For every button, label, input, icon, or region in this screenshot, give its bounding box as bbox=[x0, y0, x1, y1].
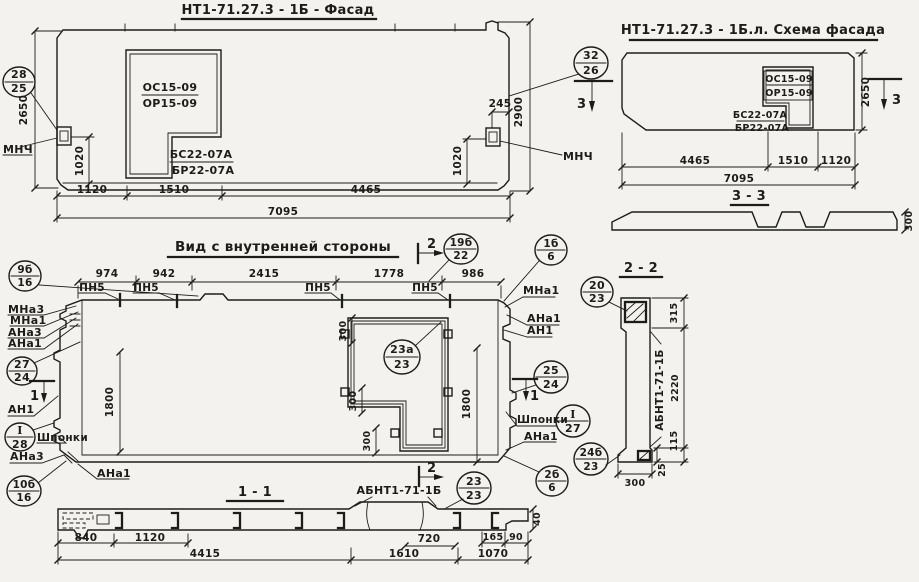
s22-dim-115: 115 bbox=[669, 431, 680, 452]
s11-dim-1120: 1120 bbox=[135, 532, 165, 544]
facade-br-mark: БР22-07А bbox=[172, 164, 235, 177]
inner-view-title: Вид с внутренней стороны bbox=[175, 239, 391, 255]
scheme-section3-markers: 3 3 bbox=[575, 79, 901, 112]
circle-9b-16-top: 9б bbox=[17, 264, 32, 276]
s11-dim-840: 840 bbox=[75, 532, 98, 544]
circle-28-25-bottom: 25 bbox=[11, 82, 27, 95]
inner-dim-974: 974 bbox=[96, 268, 119, 280]
circle-27-24-top: 27 bbox=[14, 358, 30, 371]
inner-dim-1778: 1778 bbox=[374, 268, 404, 280]
scheme-dim-1510: 1510 bbox=[778, 155, 808, 167]
circle-I-27-top: I bbox=[570, 408, 575, 421]
section2-marker-bottom: 2 bbox=[419, 461, 444, 486]
inner-mark-circle-23a-23: 23а 23 bbox=[384, 322, 441, 374]
scheme-marker3-left: 3 bbox=[577, 97, 586, 112]
scheme-dim-2650: 2650 bbox=[860, 77, 872, 107]
facade-panel-outline bbox=[57, 21, 509, 190]
s22-dim-25: 25 bbox=[657, 463, 668, 477]
inner-dim-986: 986 bbox=[462, 268, 485, 280]
inner-dim-300-c: 300 bbox=[362, 431, 373, 452]
facade-embed-plates bbox=[57, 127, 500, 146]
circle-I-28-top: I bbox=[17, 424, 22, 437]
s22-dim-2220: 2220 bbox=[670, 374, 681, 402]
circle-24b-23-bottom: 23 bbox=[583, 461, 598, 473]
label-ana1-bottom: АНа1 bbox=[97, 467, 131, 480]
section2-marker-top: 2 bbox=[418, 237, 444, 263]
section-1-1-mark-circle-23-23: 23 23 bbox=[446, 472, 491, 508]
scheme-dim-4465: 4465 bbox=[680, 155, 710, 167]
section-2-2-title: 2 - 2 bbox=[624, 261, 658, 276]
circle-1b-6-bottom: 6 bbox=[547, 251, 555, 263]
section-1-1-title: 1 - 1 bbox=[238, 485, 272, 500]
section-2-2-profile bbox=[618, 298, 652, 462]
inner-mark-circle-10b-16: 10б 16 bbox=[7, 461, 66, 506]
s11-dim-40: 40 bbox=[532, 512, 543, 526]
label-an1-left: АН1 bbox=[8, 403, 34, 416]
drawing-sheet: НТ1-71.27.3 - 1Б - Фасад 28 25 МНЧ ОС15-… bbox=[0, 0, 919, 582]
inner-panel-outline bbox=[54, 294, 516, 463]
facade-dim-1120: 1120 bbox=[77, 184, 107, 196]
panel-drawing-canvas: НТ1-71.27.3 - 1Б - Фасад 28 25 МНЧ ОС15-… bbox=[0, 0, 919, 582]
circle-2b-6-top: 2б bbox=[544, 469, 559, 481]
label-shponki-right: Шпонки bbox=[517, 414, 568, 426]
circle-23a-23-top: 23а bbox=[390, 343, 414, 356]
inner-mark-circle-25-24: 25 24 bbox=[512, 361, 568, 393]
scheme-dim-1120: 1120 bbox=[821, 155, 851, 167]
s11-dim-165: 165 bbox=[483, 532, 504, 543]
inner-dim-1800-right: 1800 bbox=[461, 389, 473, 419]
inner-dim-942: 942 bbox=[153, 268, 176, 280]
inner-mark-circle-2b-6: 2б 6 bbox=[504, 456, 568, 496]
inner-view-drawing: Вид с внутренней стороны 2 19б 22 974 94… bbox=[5, 234, 590, 506]
circle-10b-16-top: 10б bbox=[13, 479, 36, 491]
facade-dim-4465: 4465 bbox=[351, 184, 381, 196]
inner-dim-1800-left: 1800 bbox=[104, 387, 116, 417]
facade-or-mark: ОР15-09 bbox=[143, 97, 198, 110]
circle-23-23-top: 23 bbox=[466, 475, 482, 488]
marker2-bottom-label: 2 bbox=[427, 461, 436, 476]
facade-title: НТ1-71.27.3 - 1Б - Фасад bbox=[182, 3, 375, 18]
circle-24b-23-top: 24б bbox=[580, 447, 603, 459]
scheme-bs-mark: БС22-07А bbox=[733, 110, 788, 121]
section-3-3-title: 3 - 3 bbox=[732, 189, 766, 204]
s11-dim-720: 720 bbox=[418, 533, 441, 545]
label-ana1-mid-right-leader bbox=[506, 442, 556, 450]
scheme-dim-7095: 7095 bbox=[724, 173, 754, 185]
facade-dim-2900: 2900 bbox=[513, 97, 525, 127]
s22-dim-315: 315 bbox=[669, 303, 680, 324]
circle-25-24-bottom: 24 bbox=[543, 378, 559, 391]
scheme-os-mark: ОС15-09 bbox=[765, 74, 813, 85]
circle-9b-16-bottom: 16 bbox=[17, 277, 32, 289]
circle-10b-16-bottom: 16 bbox=[16, 492, 31, 504]
facade-mnch-right-label: МНЧ bbox=[563, 150, 593, 163]
label-ana3-bottom: АНа3 bbox=[10, 450, 44, 463]
label-shponki-left: Шпонки bbox=[37, 432, 88, 444]
section-2-2-mark-circle-20-23: 20 23 bbox=[581, 277, 627, 311]
circle-2b-6-bottom: 6 bbox=[548, 482, 556, 494]
inner-left-anchor-labels: МНа3 МНа1 АНа3 АНа1 bbox=[8, 303, 78, 350]
circle-32-26-bottom: 26 bbox=[583, 64, 599, 77]
circle-23-23-bottom: 23 bbox=[466, 489, 482, 502]
s11-dim-90: 90 bbox=[509, 532, 523, 543]
facade-mark-circle-28-25: 28 25 bbox=[3, 67, 57, 130]
section-1-1-abnt-label: АБНТ1-71-1Б bbox=[356, 484, 441, 497]
facade-dim-1020-left: 1020 bbox=[74, 146, 86, 176]
inner-right-anchor-labels: МНа1 АНа1 АН1 bbox=[504, 284, 561, 337]
section-1-1-dimensions: 840 1120 720 4415 1610 1070 165 90 40 bbox=[55, 506, 543, 564]
circle-27-24-bottom: 24 bbox=[14, 371, 30, 384]
facade-dimensions: 2650 2900 1020 1020 245 1120 1510 4465 7… bbox=[18, 19, 533, 222]
label-ana1-mid-right: АНа1 bbox=[524, 430, 558, 443]
circle-20-23-top: 20 bbox=[589, 279, 605, 292]
s11-dim-1610: 1610 bbox=[389, 548, 419, 560]
inner-1800-dimensions: 1800 1800 bbox=[104, 345, 480, 465]
s11-dim-4415: 4415 bbox=[190, 548, 220, 560]
s22-dim-300: 300 bbox=[625, 478, 646, 489]
section-2-2-mark-circle-24b-23: 24б 23 bbox=[574, 443, 620, 475]
facade-os-mark: ОС15-09 bbox=[143, 81, 198, 94]
section1-marker-left: 1 bbox=[30, 381, 54, 404]
facade-drawing: НТ1-71.27.3 - 1Б - Фасад 28 25 МНЧ ОС15-… bbox=[3, 3, 533, 222]
facade-dim-1510: 1510 bbox=[159, 184, 189, 196]
circle-I-27-bottom: 27 bbox=[565, 422, 581, 435]
scheme-marker3-right: 3 bbox=[892, 93, 901, 108]
facade-dim-2650: 2650 bbox=[18, 95, 30, 125]
section-3-3-dim-300: 300 bbox=[904, 211, 915, 232]
inner-pn5-labels: ПН5 ПН5 ПН5 ПН5 bbox=[79, 282, 450, 307]
circle-32-26-top: 32 bbox=[583, 49, 599, 62]
scheme-drawing: НТ1-71.27.3 - 1Б.л. Схема фасада 32 26 М… bbox=[500, 23, 915, 233]
circle-25-24-top: 25 bbox=[543, 364, 559, 377]
s11-dim-1070: 1070 bbox=[478, 548, 508, 560]
facade-dim-7095: 7095 bbox=[268, 206, 298, 218]
facade-bs-mark: БС22-07А bbox=[170, 148, 233, 161]
marker1-right-label: 1 bbox=[530, 389, 539, 404]
section-2-2-abnt-label: АБНТ1-71-1Б bbox=[654, 349, 666, 430]
inner-dim-300-a: 300 bbox=[338, 321, 349, 342]
scheme-title: НТ1-71.27.3 - 1Б.л. Схема фасада bbox=[621, 23, 885, 38]
marker1-left-label: 1 bbox=[30, 389, 39, 404]
section-3-3: 3 - 3 300 bbox=[612, 189, 915, 233]
inner-dim-2415: 2415 bbox=[249, 268, 279, 280]
inner-window-opening: 300 300 300 23а 23 bbox=[338, 315, 452, 456]
scheme-window-opening: ОС15-09 ОР15-09 БС22-07А БР22-07А bbox=[733, 67, 813, 134]
label-ana1-left: АНа1 bbox=[8, 337, 42, 350]
facade-dim-1020-right: 1020 bbox=[452, 146, 464, 176]
scheme-br-mark: БР22-07А bbox=[735, 123, 790, 134]
inner-dim-300-b: 300 bbox=[348, 391, 359, 412]
section-1-1-profile bbox=[58, 502, 528, 538]
section-2-2: 2 - 2 20 23 АБНТ1-71-1Б 315 2220 115 25 … bbox=[574, 261, 688, 489]
inner-mark-circle-I-27: I 27 bbox=[556, 405, 590, 437]
pn5-label-4: ПН5 bbox=[412, 282, 438, 294]
scheme-or-mark: ОР15-09 bbox=[765, 88, 813, 99]
facade-dim-245: 245 bbox=[489, 98, 512, 110]
pn5-label-3: ПН5 bbox=[305, 282, 331, 294]
circle-28-25-top: 28 bbox=[11, 68, 27, 81]
scheme-mark-circle-32-26: 32 26 bbox=[509, 47, 608, 96]
circle-23a-23-bottom: 23 bbox=[394, 358, 410, 371]
circle-19b-22-top: 19б bbox=[450, 237, 473, 249]
label-mna1-right: МНа1 bbox=[523, 284, 559, 297]
circle-19b-22-bottom: 22 bbox=[453, 250, 468, 262]
circle-1b-6-top: 1б bbox=[543, 238, 558, 250]
circle-20-23-bottom: 23 bbox=[589, 292, 605, 305]
label-an1-right: АН1 bbox=[527, 324, 553, 337]
marker2-top-label: 2 bbox=[427, 237, 436, 252]
